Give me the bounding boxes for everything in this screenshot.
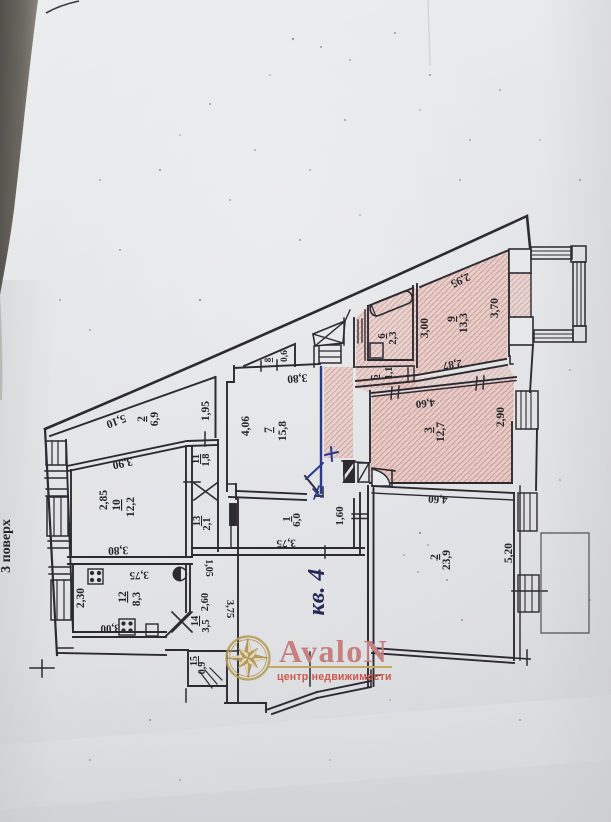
svg-text:2,30: 2,30	[75, 588, 87, 608]
svg-text:4,60: 4,60	[427, 492, 447, 505]
svg-text:9: 9	[446, 316, 458, 322]
svg-text:5: 5	[370, 375, 381, 380]
svg-text:3,00: 3,00	[100, 622, 120, 635]
svg-text:5,20: 5,20	[503, 543, 515, 563]
svg-text:12,2: 12,2	[125, 497, 137, 517]
svg-text:3,75: 3,75	[224, 600, 235, 618]
svg-text:1,05: 1,05	[203, 559, 214, 577]
svg-text:0,9: 0,9	[197, 662, 208, 675]
svg-text:6,0: 6,0	[291, 513, 303, 527]
svg-text:3,00: 3,00	[419, 318, 431, 338]
svg-text:23,9: 23,9	[441, 550, 453, 570]
svg-text:3,5: 3,5	[201, 619, 212, 632]
svg-text:3,80: 3,80	[287, 371, 308, 384]
svg-text:1,8: 1,8	[201, 453, 212, 466]
svg-text:14: 14	[190, 615, 201, 626]
svg-text:6: 6	[377, 333, 388, 338]
svg-text:2: 2	[429, 554, 441, 560]
svg-text:8: 8	[263, 357, 273, 362]
svg-text:2,85: 2,85	[98, 490, 110, 510]
svg-text:2,1: 2,1	[202, 517, 213, 530]
svg-text:6,9: 6,9	[149, 412, 161, 427]
svg-text:3,75: 3,75	[129, 569, 149, 582]
svg-text:12,7: 12,7	[435, 422, 447, 442]
svg-text:13,3: 13,3	[458, 313, 470, 333]
svg-text:AvaloN: AvaloN	[279, 633, 388, 669]
svg-text:8,3: 8,3	[131, 592, 143, 607]
svg-text:3,80: 3,80	[108, 544, 129, 557]
svg-text:12: 12	[117, 591, 129, 603]
svg-text:10: 10	[111, 499, 123, 511]
svg-text:3,70: 3,70	[489, 298, 501, 318]
svg-text:7: 7	[263, 427, 275, 433]
svg-text:1,60: 1,60	[334, 506, 346, 526]
svg-text:2,3: 2,3	[388, 331, 399, 344]
svg-text:3: 3	[423, 427, 435, 433]
svg-text:3 поверх: 3 поверх	[0, 519, 14, 573]
svg-text:центр недвижимости: центр недвижимости	[277, 671, 392, 683]
svg-text:4,06: 4,06	[240, 416, 252, 436]
svg-text:3,75: 3,75	[276, 537, 296, 550]
svg-text:1,95: 1,95	[200, 401, 212, 421]
svg-text:15,8: 15,8	[277, 421, 289, 441]
svg-text:2,90: 2,90	[495, 407, 507, 427]
svg-text:кв. 4: кв. 4	[304, 569, 330, 616]
svg-text:1,1: 1,1	[384, 367, 395, 380]
svg-text:4,60: 4,60	[415, 396, 436, 410]
svg-text:2,60: 2,60	[200, 593, 211, 611]
svg-text:0,6: 0,6	[280, 350, 290, 362]
svg-text:2: 2	[136, 416, 148, 422]
